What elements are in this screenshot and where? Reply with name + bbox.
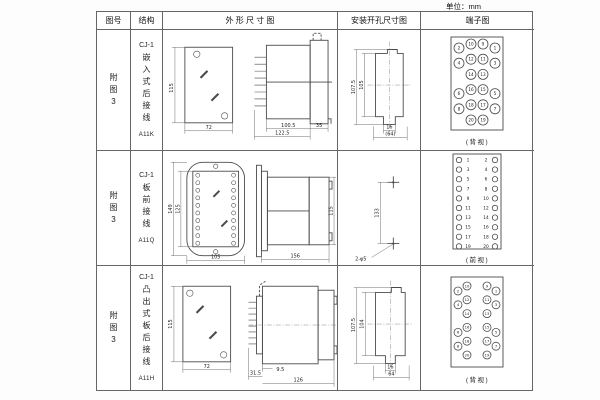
svg-text:4: 4 <box>457 303 460 307</box>
fig-no-cell: 附图3 <box>97 151 131 266</box>
svg-text:3: 3 <box>467 167 470 173</box>
outline-cell: 149 125 105 115 156 <box>163 151 338 266</box>
svg-text:1: 1 <box>495 289 497 293</box>
svg-text:20: 20 <box>483 244 489 250</box>
svg-text:72: 72 <box>206 124 212 130</box>
svg-text:104: 104 <box>360 319 366 328</box>
fig-no-cell: 附图3 <box>97 266 131 390</box>
install-drawing-a11k: 107.5 105 16 (64) <box>338 31 420 150</box>
svg-text:14: 14 <box>483 215 489 221</box>
structure-name: 板前接线 <box>142 182 150 230</box>
svg-text:4: 4 <box>458 61 461 66</box>
svg-text:6: 6 <box>458 91 461 96</box>
svg-text:16: 16 <box>386 124 392 130</box>
svg-text:20: 20 <box>468 118 474 123</box>
svg-text:133: 133 <box>375 208 381 217</box>
svg-text:8: 8 <box>458 106 461 111</box>
install-cell: 133 2-φ5 <box>338 151 421 266</box>
svg-text:16: 16 <box>468 87 474 92</box>
svg-text:14: 14 <box>465 312 470 316</box>
terminal-diagram-a11k: 2109141211314136161558181772019 <box>421 34 534 134</box>
header-fig-no: 图号 <box>97 12 131 30</box>
svg-text:115: 115 <box>169 83 175 92</box>
svg-text:100.5: 100.5 <box>281 122 295 128</box>
svg-text:1: 1 <box>467 158 470 164</box>
svg-text:122.5: 122.5 <box>275 130 289 136</box>
front-view: 115 72 <box>168 286 231 373</box>
model-label: CJ-1 <box>139 172 154 179</box>
svg-text:7: 7 <box>467 186 470 192</box>
svg-text:5: 5 <box>467 177 470 183</box>
svg-text:17: 17 <box>465 234 471 240</box>
header-structure: 结构 <box>131 12 163 30</box>
dimension-table: 图号 结构 外 形 尺 寸 图 安装开孔尺寸图 端子图 附图3 CJ-1 嵌入式… <box>96 11 533 391</box>
svg-text:12: 12 <box>465 298 470 302</box>
svg-text:107.5: 107.5 <box>351 317 357 331</box>
terminal-view-caption: (背视) <box>466 374 489 384</box>
svg-text:156: 156 <box>290 253 299 259</box>
svg-text:9.5: 9.5 <box>276 366 284 372</box>
svg-text:18: 18 <box>465 340 470 344</box>
svg-text:9: 9 <box>467 196 470 202</box>
side-view: 9.5 31.5 126 <box>249 281 337 386</box>
svg-text:105: 105 <box>211 254 220 260</box>
svg-text:8: 8 <box>485 186 488 192</box>
side-view: 115 156 <box>256 165 336 262</box>
svg-text:7: 7 <box>495 345 498 349</box>
svg-text:8: 8 <box>457 345 460 349</box>
svg-text:9: 9 <box>482 42 485 47</box>
svg-text:2: 2 <box>485 158 488 164</box>
terminal-cell: 2109141211314136161558181772019 (背视) <box>421 30 534 151</box>
svg-text:20: 20 <box>465 353 470 357</box>
svg-text:16: 16 <box>483 225 489 231</box>
terminal-cell: 1234567891011121314151617181920 (前视) <box>421 151 534 266</box>
svg-text:3: 3 <box>495 303 498 307</box>
svg-text:10: 10 <box>483 196 489 202</box>
install-cell: 107.5 105 16 (64) <box>338 30 421 151</box>
svg-text:13: 13 <box>465 215 471 221</box>
install-drawing-a11q: 133 2-φ5 <box>338 152 420 265</box>
svg-text:12: 12 <box>468 57 474 62</box>
svg-text:18: 18 <box>483 234 489 240</box>
fig-no-label: 附图3 <box>110 190 118 226</box>
terminal-view-caption: (背视) <box>466 136 489 146</box>
svg-text:17: 17 <box>485 340 490 344</box>
svg-text:17: 17 <box>480 102 486 107</box>
header-outline-dims: 外 形 尺 寸 图 <box>163 12 338 30</box>
structure-cell: CJ-1 嵌入式后接线 A11K <box>131 30 163 151</box>
type-code: A11H <box>139 376 155 382</box>
terminal-view-caption: (前视) <box>466 254 489 264</box>
svg-text:11: 11 <box>480 57 486 62</box>
fig-no-label: 附图3 <box>110 72 118 108</box>
svg-text:1: 1 <box>494 46 497 51</box>
fig-no-label: 附图3 <box>110 310 118 346</box>
svg-text:2: 2 <box>458 46 461 51</box>
structure-name: 凸出式板后接线 <box>142 284 150 368</box>
svg-text:125: 125 <box>175 204 181 213</box>
svg-text:2-φ5: 2-φ5 <box>355 256 366 262</box>
svg-text:115: 115 <box>168 319 174 328</box>
svg-text:15: 15 <box>485 326 490 330</box>
svg-text:5: 5 <box>494 91 497 96</box>
structure-cell: CJ-1 板前接线 A11Q <box>131 151 163 266</box>
svg-text:2: 2 <box>457 289 459 293</box>
svg-text:13: 13 <box>480 72 486 77</box>
svg-text:19: 19 <box>465 244 471 250</box>
svg-text:5: 5 <box>495 331 498 335</box>
svg-text:105: 105 <box>359 80 365 89</box>
outline-drawing-a11q: 149 125 105 115 156 <box>163 152 337 265</box>
svg-text:72: 72 <box>204 363 210 369</box>
install-drawing-a11h: 107.5 104 16 64 <box>338 268 420 389</box>
svg-text:35: 35 <box>316 122 322 128</box>
outline-cell: 115 72 100.5 122.5 35 <box>163 30 338 151</box>
type-code: A11K <box>139 132 154 138</box>
structure-name: 嵌入式后接线 <box>143 52 151 124</box>
svg-text:15: 15 <box>465 225 471 231</box>
svg-text:6: 6 <box>457 331 460 335</box>
svg-text:19: 19 <box>485 353 490 357</box>
outline-drawing-a11k: 115 72 100.5 122.5 35 <box>163 31 337 150</box>
outline-drawing-a11h: 115 72 9.5 31.5 126 <box>163 268 337 389</box>
svg-text:18: 18 <box>468 102 474 107</box>
svg-text:15: 15 <box>480 87 486 92</box>
terminal-cell: 2109141211314136161558181772019 (背视) <box>421 266 534 390</box>
svg-text:11: 11 <box>485 298 490 302</box>
front-view: 149 125 105 <box>168 162 245 263</box>
terminal-diagram-a11h: 2109141211314136161558181772019 <box>421 272 534 372</box>
svg-text:149: 149 <box>168 204 174 213</box>
svg-text:16: 16 <box>465 326 470 330</box>
svg-text:16: 16 <box>387 364 393 370</box>
svg-text:31.5: 31.5 <box>250 370 261 376</box>
model-label: CJ-1 <box>139 274 154 281</box>
header-terminal: 端子图 <box>421 12 534 30</box>
model-label: CJ-1 <box>139 42 154 49</box>
structure-cell: CJ-1 凸出式板后接线 A11H <box>131 266 163 390</box>
svg-text:126: 126 <box>293 377 302 383</box>
svg-text:(64): (64) <box>385 131 395 137</box>
front-view: 115 72 <box>169 47 233 134</box>
svg-text:9: 9 <box>486 284 489 288</box>
svg-text:10: 10 <box>468 42 474 47</box>
svg-text:7: 7 <box>494 106 497 111</box>
svg-text:3: 3 <box>494 61 497 66</box>
fig-no-cell: 附图3 <box>97 30 131 151</box>
svg-text:14: 14 <box>468 72 474 77</box>
svg-text:11: 11 <box>465 206 471 212</box>
svg-text:10: 10 <box>465 284 470 288</box>
svg-text:64: 64 <box>388 371 394 377</box>
svg-text:4: 4 <box>485 167 488 173</box>
outline-cell: 115 72 9.5 31.5 126 <box>163 266 338 390</box>
svg-text:115: 115 <box>329 206 335 215</box>
svg-text:12: 12 <box>483 206 489 212</box>
svg-text:107.5: 107.5 <box>351 79 357 93</box>
side-view: 100.5 122.5 35 <box>254 33 332 139</box>
type-code: A11Q <box>138 238 154 244</box>
install-cell: 107.5 104 16 64 <box>338 266 421 390</box>
header-install-dims: 安装开孔尺寸图 <box>338 12 421 30</box>
svg-text:13: 13 <box>485 312 490 316</box>
svg-text:19: 19 <box>480 118 486 123</box>
terminal-diagram-a11q: 1234567891011121314151617181920 <box>421 152 534 252</box>
svg-text:6: 6 <box>485 177 488 183</box>
